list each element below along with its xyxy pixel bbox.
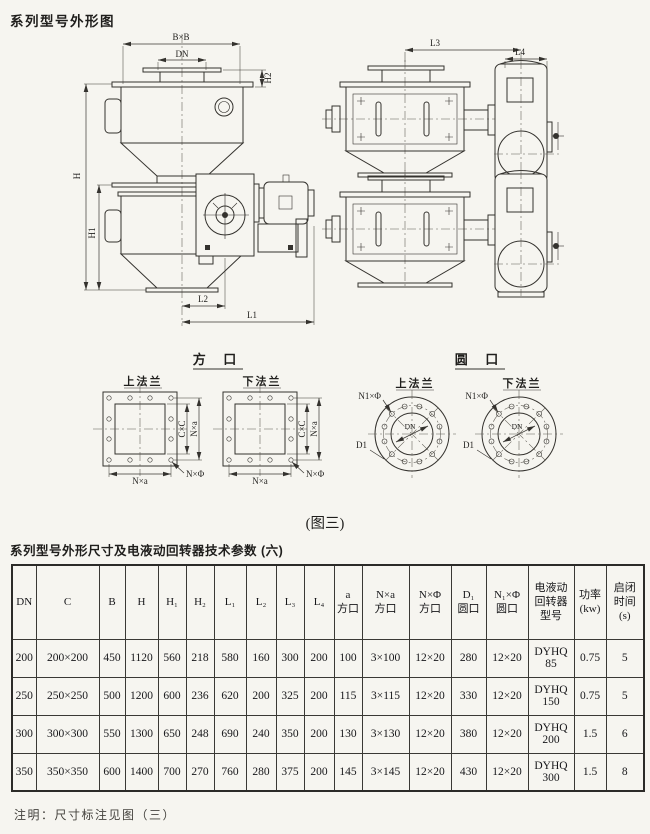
lower-flange-label: 下法兰 — [503, 376, 542, 390]
table-cell: 450 — [99, 639, 125, 677]
table-cell: 236 — [186, 677, 214, 715]
table-cell: 550 — [99, 715, 125, 753]
column-header: N₁×Φ 圆口 — [486, 565, 528, 639]
column-header: L₄ — [304, 565, 334, 639]
handle — [105, 210, 121, 242]
table-cell: 580 — [214, 639, 246, 677]
dim-label-cxc: C×C — [297, 420, 307, 437]
dim-label-nxa-v: N×a — [309, 421, 319, 437]
table-row: 200200×20045011205602185801603002001003×… — [12, 639, 644, 677]
table-cell: 560 — [158, 639, 186, 677]
table-cell: 0.75 — [574, 677, 606, 715]
outline-drawing-figure: B×B DN H2 H H1 L2 — [0, 26, 650, 508]
column-header: DN — [12, 565, 36, 639]
gearbox — [494, 60, 564, 187]
dim-label-n1xphi: N1×Φ — [465, 391, 488, 401]
table-cell: 270 — [186, 753, 214, 791]
table-cell: 5 — [606, 677, 644, 715]
table-cell: 200 — [12, 639, 36, 677]
table-cell: 1200 — [125, 677, 158, 715]
table-cell: 12×20 — [409, 753, 451, 791]
table-cell: 3×115 — [362, 677, 409, 715]
dim-label-nxphi: N×Φ — [306, 469, 325, 479]
column-header: 电液动 回转器 型号 — [528, 565, 574, 639]
front-view-dimensions: B×B DN H2 H H1 L2 — [72, 32, 314, 325]
table-cell: 12×20 — [486, 639, 528, 677]
table-cell: 248 — [186, 715, 214, 753]
column-header: H₁ — [158, 565, 186, 639]
table-cell: 5 — [606, 639, 644, 677]
dim-label-l1: L1 — [247, 310, 257, 320]
column-header: N×a 方口 — [362, 565, 409, 639]
table-cell: 250×250 — [36, 677, 99, 715]
table-cell: 1300 — [125, 715, 158, 753]
table-cell: 100 — [334, 639, 362, 677]
dim-label-h: H — [72, 172, 82, 179]
dim-label-dn: DN — [405, 422, 416, 431]
table-cell: 300×300 — [36, 715, 99, 753]
table-cell: 430 — [451, 753, 486, 791]
footnote: 注明：尺寸标注见图（三） — [14, 806, 176, 823]
dim-label-h2: H2 — [263, 73, 273, 84]
dim-label-h1: H1 — [87, 228, 97, 239]
table-cell: 280 — [246, 753, 276, 791]
column-header: a 方口 — [334, 565, 362, 639]
table-cell: 300 — [12, 715, 36, 753]
sight-glass — [215, 98, 233, 116]
table-cell: 250 — [12, 677, 36, 715]
column-header: H — [125, 565, 158, 639]
table-cell: 160 — [246, 639, 276, 677]
handle — [105, 99, 121, 133]
table-cell: 200×200 — [36, 639, 99, 677]
table-cell: 12×20 — [409, 677, 451, 715]
table-cell: 8 — [606, 753, 644, 791]
rotary-actuator — [196, 174, 314, 264]
table-cell: 130 — [334, 715, 362, 753]
table-cell: 12×20 — [409, 715, 451, 753]
round-flange-upper: DN — [368, 390, 456, 478]
table-cell: 145 — [334, 753, 362, 791]
square-flange-upper — [93, 384, 187, 476]
dim-label-nxphi: N×Φ — [186, 469, 205, 479]
figure-caption: (图三) — [0, 512, 650, 533]
column-header: L₁ — [214, 565, 246, 639]
table-cell: 1.5 — [574, 715, 606, 753]
table-cell: 200 — [304, 639, 334, 677]
table-cell: 600 — [158, 677, 186, 715]
table-cell: 1.5 — [574, 753, 606, 791]
table-cell: 690 — [214, 715, 246, 753]
motor — [264, 182, 308, 224]
spec-table: DNCBHH₁H₂L₁L₂L₃L₄a 方口N×a 方口N×Φ 方口D₁ 圆口N₁… — [11, 564, 645, 792]
spec-table-head: DNCBHH₁H₂L₁L₂L₃L₄a 方口N×a 方口N×Φ 方口D₁ 圆口N₁… — [12, 565, 644, 639]
valve-lever — [553, 133, 559, 139]
table-cell: 200 — [304, 753, 334, 791]
table-cell: DYHQ 200 — [528, 715, 574, 753]
table-cell: 375 — [276, 753, 304, 791]
table-cell: 12×20 — [486, 753, 528, 791]
table-cell: 620 — [214, 677, 246, 715]
table-cell: 218 — [186, 639, 214, 677]
table-row: 250250×25050012006002366202003252001153×… — [12, 677, 644, 715]
table-row: 350350×35060014007002707602803752001453×… — [12, 753, 644, 791]
scanned-document-page: 系列型号外形图 — [0, 0, 650, 834]
table-cell: DYHQ 300 — [528, 753, 574, 791]
dim-label-d1: D1 — [356, 440, 367, 450]
table-title: 系列型号外形尺寸及电液动回转器技术参数 (六) — [10, 540, 283, 559]
table-cell: 760 — [214, 753, 246, 791]
table-cell: 200 — [246, 677, 276, 715]
column-header: H₂ — [186, 565, 214, 639]
table-cell: 300 — [276, 639, 304, 677]
table-cell: 1120 — [125, 639, 158, 677]
square-port-detail: 方 口 上法兰 C×C N×a N×a — [93, 352, 325, 486]
square-port-title: 方 口 — [193, 352, 244, 367]
round-port-title: 圆 口 — [455, 352, 506, 367]
table-cell: 380 — [451, 715, 486, 753]
table-cell: 12×20 — [486, 677, 528, 715]
table-cell: 325 — [276, 677, 304, 715]
dim-label-l2: L2 — [198, 294, 208, 304]
dim-label-d1: D1 — [463, 440, 474, 450]
table-cell: 350×350 — [36, 753, 99, 791]
header-row: DNCBHH₁H₂L₁L₂L₃L₄a 方口N×a 方口N×Φ 方口D₁ 圆口N₁… — [12, 565, 644, 639]
side-view-unit — [322, 60, 564, 187]
table-cell: DYHQ 85 — [528, 639, 574, 677]
column-header: L₃ — [276, 565, 304, 639]
dim-label-nxa-b: N×a — [252, 476, 268, 486]
table-cell: 350 — [276, 715, 304, 753]
table-cell: 330 — [451, 677, 486, 715]
table-cell: 12×20 — [409, 639, 451, 677]
column-header: 启闭 时间 (s) — [606, 565, 644, 639]
square-flange-lower — [213, 384, 307, 476]
round-flange-lower: DN — [475, 390, 563, 478]
table-cell: 115 — [334, 677, 362, 715]
front-view: B×B DN H2 H H1 L2 — [72, 32, 314, 326]
round-port-detail: 圆 口 上法兰 DN N1×Φ D1 — [356, 352, 563, 478]
table-cell: 700 — [158, 753, 186, 791]
table-cell: 280 — [451, 639, 486, 677]
dim-label-l3: L3 — [430, 38, 440, 48]
upper-flange-label: 上法兰 — [396, 376, 435, 390]
column-header: 功率 (kw) — [574, 565, 606, 639]
column-header: B — [99, 565, 125, 639]
table-cell: 240 — [246, 715, 276, 753]
table-cell: 12×20 — [486, 715, 528, 753]
spec-table-body: 200200×20045011205602185801603002001003×… — [12, 639, 644, 791]
table-cell: DYHQ 150 — [528, 677, 574, 715]
table-cell: 3×145 — [362, 753, 409, 791]
dim-label-nxa-v: N×a — [189, 421, 199, 437]
dim-label-dn: DN — [176, 49, 189, 59]
table-cell: 0.75 — [574, 639, 606, 677]
table-cell: 350 — [12, 753, 36, 791]
table-cell: 1400 — [125, 753, 158, 791]
dim-label-bxb: B×B — [172, 32, 189, 42]
dim-label-n1xphi: N1×Φ — [358, 391, 381, 401]
table-cell: 200 — [304, 715, 334, 753]
column-header: N×Φ 方口 — [409, 565, 451, 639]
table-row: 300300×30055013006502486902403502001303×… — [12, 715, 644, 753]
column-header: L₂ — [246, 565, 276, 639]
table-cell: 6 — [606, 715, 644, 753]
table-cell: 3×100 — [362, 639, 409, 677]
column-header: D₁ 圆口 — [451, 565, 486, 639]
table-cell: 650 — [158, 715, 186, 753]
upper-flange-label: 上法兰 — [124, 374, 163, 388]
dim-label-l4: L4 — [515, 47, 525, 57]
dim-label-cxc: C×C — [177, 420, 187, 437]
dim-label-nxa-b: N×a — [132, 476, 148, 486]
table-cell: 600 — [99, 753, 125, 791]
table-cell: 500 — [99, 677, 125, 715]
table-cell: 3×130 — [362, 715, 409, 753]
lower-flange-label: 下法兰 — [243, 374, 282, 388]
dim-label-dn: DN — [512, 422, 523, 431]
table-cell: 200 — [304, 677, 334, 715]
column-header: C — [36, 565, 99, 639]
